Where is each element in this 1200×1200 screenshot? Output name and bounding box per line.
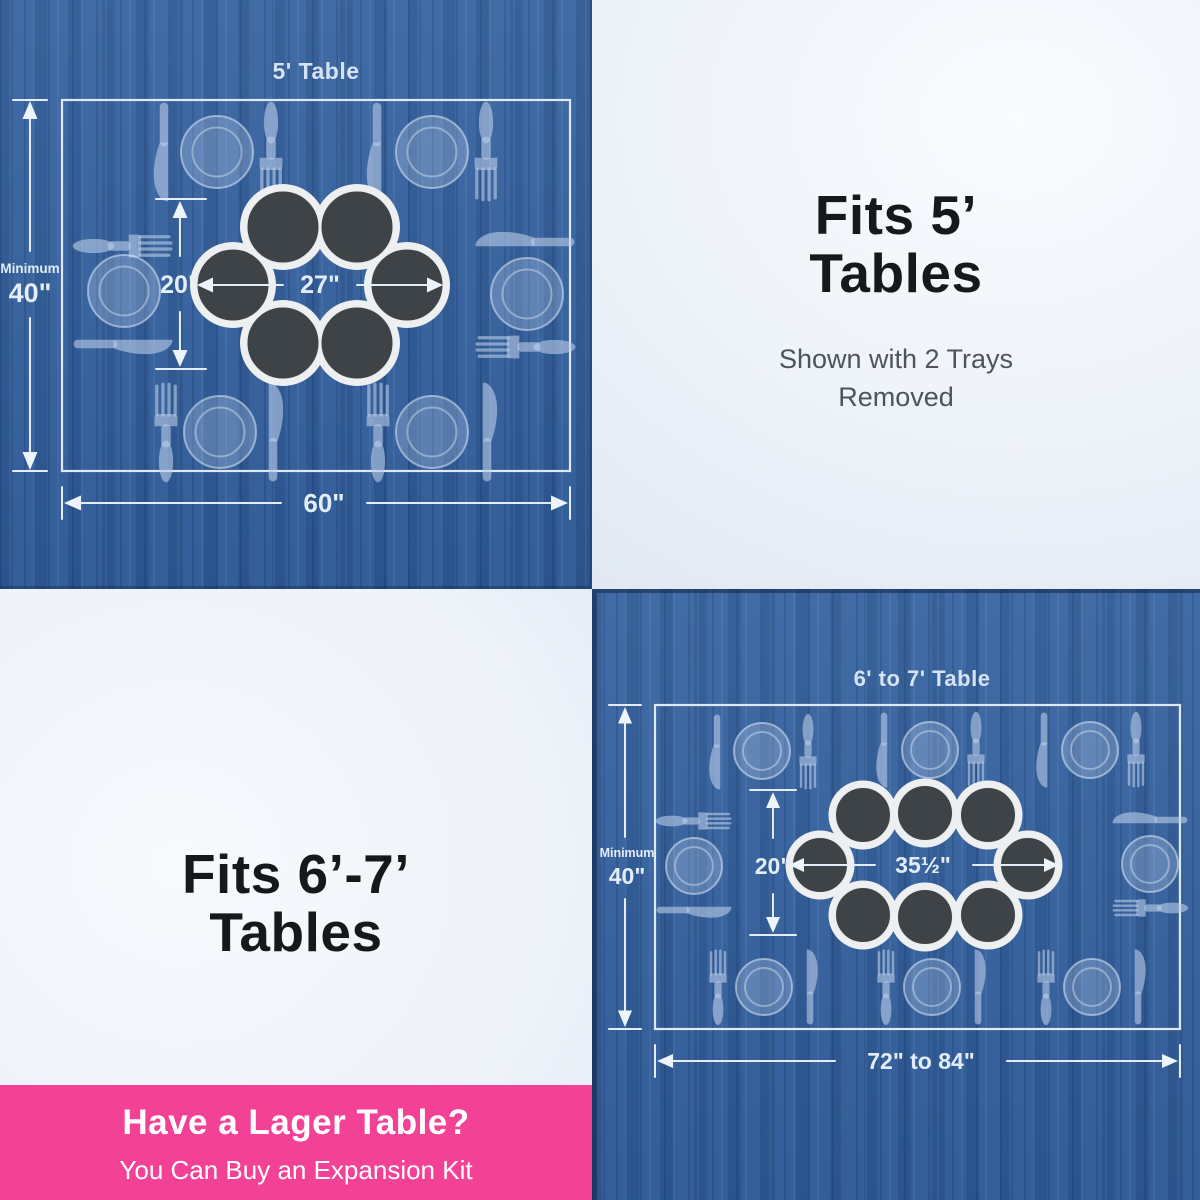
cluster-height-value: 20" (755, 853, 792, 879)
expansion-kit-banner: Have a Lager Table? You Can Buy an Expan… (0, 1085, 592, 1200)
plate-icon (736, 959, 792, 1015)
place-setting-right (476, 232, 576, 359)
minimum-value: 40" (609, 863, 646, 889)
fork-icon (1127, 712, 1144, 788)
cluster-height-value: 20" (160, 271, 200, 299)
caption-5ft-panel: Fits 5’ Tables Shown with 2 Trays Remove… (592, 0, 1200, 589)
knife-icon (154, 103, 168, 202)
arrow-left-icon (64, 496, 81, 511)
tray-icon (898, 890, 953, 945)
dimension-minimum-40: Minimum 40" (600, 705, 655, 1029)
plate-icon (396, 116, 468, 188)
banner-title: Have a Lager Table? (122, 1105, 469, 1140)
place-setting-right (1113, 812, 1189, 916)
plate-icon (666, 838, 722, 894)
fork-icon (73, 235, 173, 258)
tray-icon (961, 788, 1016, 843)
knife-icon (807, 950, 818, 1025)
caption-67ft-panel: Fits 6’-7’ Tables Have a Lager Table? Yo… (0, 589, 592, 1200)
plate-icon (902, 722, 958, 778)
place-setting-left (656, 812, 732, 917)
fork-icon (155, 383, 178, 483)
place-setting-top-2 (876, 712, 984, 788)
place-setting-bottom-right (367, 383, 498, 483)
knife-icon (1113, 812, 1188, 823)
arrow-down-icon (766, 917, 780, 933)
tray-icon (321, 191, 393, 263)
knife-icon (476, 232, 575, 246)
arrow-right-icon (551, 496, 568, 511)
knife-icon (483, 383, 497, 482)
place-setting-bottom-1 (709, 950, 817, 1026)
fork-icon (799, 714, 816, 790)
minimum-label: Minimum (0, 261, 59, 276)
width-value: 72" to 84" (867, 1048, 974, 1074)
caption-5ft-subtext: Shown with 2 Trays Removed (592, 340, 1200, 417)
plate-icon (396, 396, 468, 468)
plate-icon (1062, 722, 1118, 778)
minimum-value: 40" (9, 278, 52, 308)
fork-icon (475, 102, 498, 202)
plate-icon (1122, 836, 1178, 892)
dimension-width-60: 60" (62, 487, 570, 519)
place-setting-top-3 (1036, 712, 1144, 788)
arrow-up-icon (766, 792, 780, 808)
heading-line: Fits 6’-7’ (0, 845, 592, 903)
fork-icon (367, 383, 390, 483)
width-value: 60" (303, 488, 344, 518)
diagram-5ft-panel: 5' Table (0, 0, 592, 589)
knife-icon (1036, 713, 1047, 788)
place-setting-top-left (154, 102, 283, 202)
tray-icon (247, 307, 319, 379)
knife-icon (74, 340, 173, 354)
arrow-up-icon (23, 101, 38, 119)
dimension-minimum-40: Minimum 40" (0, 100, 59, 471)
place-setting-bottom-3 (1037, 950, 1145, 1026)
tray-icon (321, 307, 393, 379)
diagram-67ft-panel: 6' to 7' Table (592, 589, 1200, 1200)
place-setting-top-1 (709, 714, 816, 790)
fork-icon (1113, 899, 1189, 916)
subtext-line: Shown with 2 Trays (592, 340, 1200, 378)
banner-subtitle: You Can Buy an Expansion Kit (119, 1157, 472, 1183)
knife-icon (657, 907, 732, 918)
caption-5ft-heading: Fits 5’ Tables (592, 186, 1200, 303)
knife-icon (1135, 950, 1146, 1025)
plate-icon (184, 396, 256, 468)
fork-icon (1037, 950, 1054, 1026)
fork-icon (709, 950, 726, 1026)
caption-67ft-heading: Fits 6’-7’ Tables (0, 845, 592, 962)
tray-icon (898, 786, 953, 841)
dimension-width-72-84: 72" to 84" (655, 1045, 1180, 1077)
place-setting-bottom-2 (877, 950, 985, 1026)
subtext-line: Removed (592, 378, 1200, 416)
tray-table-infographic: 5' Table (0, 0, 1200, 1200)
plate-icon (181, 116, 253, 188)
plate-icon (734, 723, 790, 779)
arrow-left-icon (657, 1054, 673, 1068)
fork-icon (656, 812, 732, 829)
knife-icon (975, 950, 986, 1025)
diagram-67ft: 6' to 7' Table (592, 589, 1200, 1200)
arrow-down-icon (173, 350, 188, 367)
fork-icon (967, 712, 984, 788)
dimension-cluster-height: 20" (750, 790, 796, 935)
cluster-width-value: 35½" (895, 852, 951, 878)
arrow-right-icon (1162, 1054, 1178, 1068)
plate-icon (88, 255, 160, 327)
tray-icon (247, 191, 319, 263)
knife-icon (709, 715, 720, 790)
cluster-width-value: 27" (300, 271, 340, 299)
arrow-down-icon (618, 1011, 632, 1028)
place-setting-top-right (367, 102, 498, 202)
plate-icon (1064, 959, 1120, 1015)
knife-icon (269, 383, 283, 482)
plate-icon (904, 959, 960, 1015)
heading-line: Tables (0, 903, 592, 961)
fork-icon (476, 336, 576, 359)
table-title: 6' to 7' Table (854, 666, 991, 691)
arrow-down-icon (23, 452, 38, 470)
fork-icon (877, 950, 894, 1026)
tray-icon (836, 788, 891, 843)
tray-icon (961, 888, 1016, 943)
heading-line: Fits 5’ (592, 186, 1200, 244)
diagram-5ft: 5' Table (0, 0, 592, 589)
knife-icon (876, 713, 887, 788)
heading-line: Tables (592, 244, 1200, 302)
table-title: 5' Table (272, 58, 359, 84)
minimum-label: Minimum (600, 846, 655, 860)
arrow-up-icon (173, 201, 188, 218)
tray-icon (836, 888, 891, 943)
place-setting-bottom-left (155, 383, 284, 483)
plate-icon (491, 258, 563, 330)
arrow-up-icon (618, 707, 632, 724)
place-setting-left (73, 235, 173, 355)
